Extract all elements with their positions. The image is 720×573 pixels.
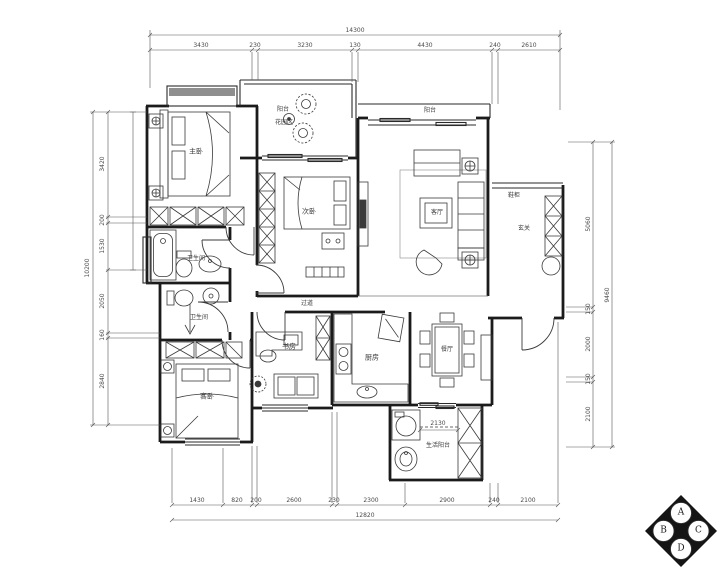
mop-sink xyxy=(395,447,417,471)
dim-left-5: 2840 xyxy=(100,373,106,388)
room-label-entry: 玄关 xyxy=(518,226,530,232)
room-label-bedroom3: 客卧 xyxy=(200,394,214,401)
dim-bottom-total: 12820 xyxy=(355,513,374,519)
dim-left-total: 10200 xyxy=(85,258,91,277)
dim-left-2: 1530 xyxy=(100,238,106,253)
entry-stool xyxy=(542,257,560,275)
walls xyxy=(146,106,564,480)
dim-top-5: 240 xyxy=(489,43,500,49)
room-label-garden-1: 阳台 xyxy=(277,107,289,113)
dim-top-1: 230 xyxy=(249,43,260,49)
compass-letter-a: A xyxy=(678,509,685,518)
room-label-bath1: 卫生间 xyxy=(187,256,205,262)
dim-right-0: 5060 xyxy=(586,216,592,231)
room-label-dining: 餐厅 xyxy=(441,347,453,353)
dim-top-4: 4430 xyxy=(417,43,432,49)
room-label-master: 主卧 xyxy=(189,149,203,156)
room-label-hallway: 过道 xyxy=(301,301,313,307)
dim-right-total: 9460 xyxy=(605,287,611,302)
room-label-living: 客厅 xyxy=(431,210,443,216)
windows-thin-walls xyxy=(143,80,563,445)
fridge xyxy=(378,314,404,341)
room-label-study: 书房 xyxy=(282,344,296,351)
dim-left-1: 200 xyxy=(100,214,106,225)
room-label-laundry: 生活阳台 xyxy=(426,443,450,449)
floorplan-linework xyxy=(0,0,720,573)
dim-bottom-8: 2100 xyxy=(520,498,535,504)
plant-icon xyxy=(293,123,313,143)
dim-bottom-3: 2600 xyxy=(286,498,301,504)
room-label-bath2: 卫生间 xyxy=(190,315,208,321)
dim-right-2: 2000 xyxy=(586,336,592,351)
dim-bottom-1: 820 xyxy=(231,498,242,504)
dim-bottom-7: 240 xyxy=(488,498,499,504)
dim-top-3: 130 xyxy=(349,43,360,49)
dim-bottom-5: 2300 xyxy=(363,498,378,504)
dim-bottom-0: 1430 xyxy=(189,498,204,504)
dim-bottom-4: 230 xyxy=(328,498,339,504)
dim-top-6: 2610 xyxy=(521,43,536,49)
plant-icon xyxy=(296,94,316,114)
dim-left-4: 160 xyxy=(100,329,106,340)
room-label-garden-2: 花园区 xyxy=(275,120,293,126)
armchair xyxy=(416,250,442,275)
dim-bottom-2: 200 xyxy=(250,498,261,504)
dim-bottom-6: 2900 xyxy=(439,498,454,504)
dim-right-1: 150 xyxy=(586,303,592,314)
dim-laundry-width: 2130 xyxy=(430,421,445,427)
daybed xyxy=(274,374,318,398)
compass-letter-b: B xyxy=(660,527,667,536)
dim-left-3: 2050 xyxy=(100,293,106,308)
sofa xyxy=(458,182,484,248)
toilet2 xyxy=(175,290,193,306)
bed3 xyxy=(176,364,238,438)
master-bed-headboard xyxy=(160,110,168,198)
dim-top-2: 3230 xyxy=(297,43,312,49)
dim-top-0: 3430 xyxy=(193,43,208,49)
dim-right-3: 150 xyxy=(586,373,592,384)
dim-right-4: 2100 xyxy=(586,406,592,421)
tv xyxy=(360,200,366,228)
label-shoe-cabinet: 鞋柜 xyxy=(508,193,520,199)
room-label-balcony: 阳台 xyxy=(424,108,436,114)
dim-left-0: 3420 xyxy=(100,156,106,171)
hall-cabinet xyxy=(481,335,492,380)
elevation-marker xyxy=(645,495,717,567)
floorplan-canvas: 主卧 阳台 花园区 次卧 阳台 客厅 鞋柜 玄关 过道 书房 厨房 餐厅 卫生间… xyxy=(0,0,720,573)
room-label-bedroom2: 次卧 xyxy=(302,209,316,216)
stove xyxy=(336,344,351,374)
compass-letter-c: C xyxy=(695,527,702,536)
dim-top-total: 14300 xyxy=(345,28,364,34)
compass-letter-d: D xyxy=(677,545,684,554)
room-label-kitchen: 厨房 xyxy=(365,355,379,362)
